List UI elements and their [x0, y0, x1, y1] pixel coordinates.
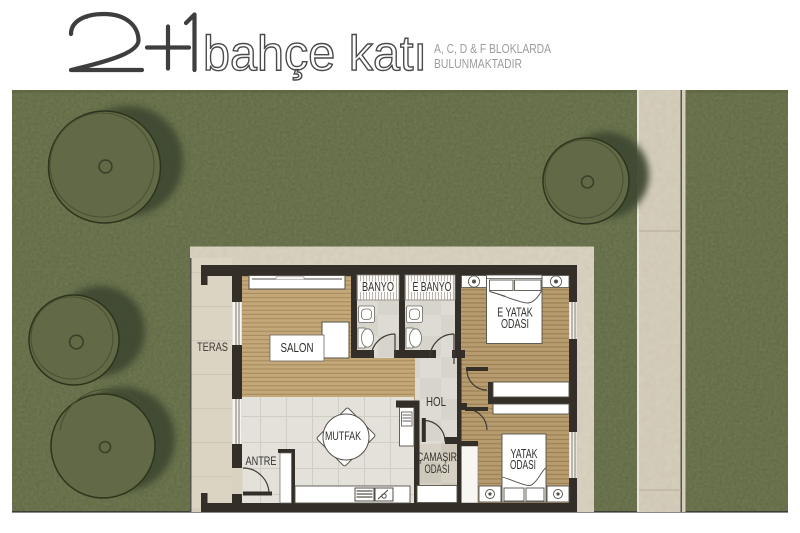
svg-text:ODASI: ODASI	[501, 317, 529, 331]
svg-text:HOL: HOL	[426, 395, 446, 409]
svg-text:BULUNMAKTADIR: BULUNMAKTADIR	[434, 57, 522, 71]
svg-text:TERAS: TERAS	[197, 340, 228, 354]
svg-text:E BANYO: E BANYO	[413, 280, 452, 294]
svg-text:ODASI: ODASI	[425, 464, 450, 476]
svg-text:SALON: SALON	[281, 341, 314, 355]
svg-text:ANTRE: ANTRE	[246, 454, 277, 468]
svg-text:ÇAMAŞIR: ÇAMAŞIR	[417, 452, 457, 464]
svg-text:A, C, D & F BLOKLARDA: A, C, D & F BLOKLARDA	[434, 42, 552, 56]
svg-text:ODASI: ODASI	[510, 458, 536, 472]
svg-text:bahçe katı: bahçe katı	[203, 27, 427, 81]
svg-text:BANYO: BANYO	[362, 280, 394, 294]
svg-text:MUTFAK: MUTFAK	[325, 429, 361, 443]
